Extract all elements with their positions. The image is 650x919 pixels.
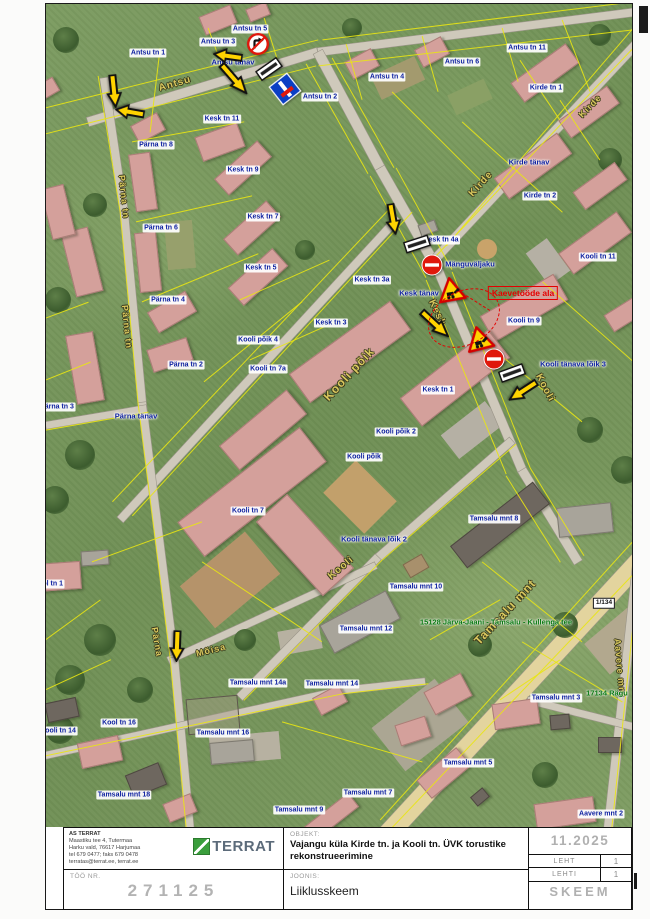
- address-label: Kirde tn 1: [528, 84, 563, 93]
- address-label: Tamsalu mnt 8: [468, 515, 520, 524]
- terrat-logo-text: TERRAT: [212, 838, 275, 855]
- tree: [532, 762, 558, 788]
- address-label: Tamsalu mnt 12: [338, 625, 393, 634]
- address-label: Kooli tänava lõik 2: [341, 535, 407, 544]
- date: 11.2025: [529, 833, 631, 848]
- tree: [611, 456, 632, 484]
- address-label: Mänguväljaku: [445, 260, 495, 269]
- divider: [284, 869, 528, 870]
- address-label: Kooli põik 2: [375, 428, 418, 437]
- address-label: Aavere mnt 2: [578, 810, 625, 819]
- address-label: Antsu tn 11: [507, 44, 548, 53]
- address-label: Pärna tn 2: [168, 361, 205, 370]
- tree: [55, 665, 85, 695]
- address-label: Kesk tn 1: [421, 386, 455, 395]
- address-label: Kesk tänav: [399, 289, 439, 298]
- tree: [65, 440, 95, 470]
- address-label: Antsu tn 1: [129, 49, 166, 58]
- road-number-label: 17134 Rägu: [586, 689, 628, 698]
- drawing-title: Liiklusskeem: [290, 884, 359, 898]
- tree: [234, 629, 256, 651]
- sheets-total-row: LEHTI 1: [529, 867, 631, 881]
- address-label: Kooli tn 11: [579, 253, 617, 262]
- address-label: Kooli tn 7: [231, 507, 266, 516]
- fold-mark-top: [639, 6, 648, 33]
- address-label: Pärna tänav: [115, 412, 158, 421]
- address-label: Tamsalu mnt 16: [195, 729, 250, 738]
- terrain-patch: [477, 239, 497, 259]
- address-label: Kesk tn 11: [203, 115, 241, 124]
- no-entry-sign: [484, 349, 505, 370]
- sheets-total-label: LEHTI: [529, 868, 600, 881]
- address-label: Kesk tn 9: [226, 166, 260, 175]
- tree: [84, 624, 116, 656]
- address-label: Tamsalu mnt 3: [530, 694, 582, 703]
- km-marker-label: 1/134: [593, 598, 615, 609]
- address-label: Kesk tn 5: [244, 264, 278, 273]
- address-label: Antsu tn 2: [301, 93, 338, 102]
- address-label: Tamsalu mnt 9: [273, 806, 325, 815]
- company-address: AS TERRAT Maastiku tee 4, Tutermaa Harku…: [69, 831, 140, 866]
- address-label: Kesk tn 7: [246, 213, 280, 222]
- stage: SKEEM: [529, 884, 631, 899]
- tree: [53, 27, 79, 53]
- tree: [83, 193, 107, 217]
- road-number-label: 15128 Järva-Jaani - Tamsalu - Kullenga t…: [420, 618, 572, 627]
- no-turning-sign: [247, 33, 269, 55]
- terrat-logo-icon: [193, 838, 210, 855]
- title-block-object-cell: OBJEKT: Vajangu küla Kirde tn. ja Kooli …: [284, 828, 529, 909]
- aerial-map: Antsu tn 5Antsu tn 3Antsu tn 1Antsu tn 2…: [46, 4, 632, 827]
- divider: [529, 881, 631, 882]
- drawing-sheet: { "title_block": { "company": { "lines":…: [0, 0, 650, 919]
- sheets-total-value: 1: [600, 868, 631, 881]
- address-label: Kooli tn 9: [507, 317, 542, 326]
- address-label: Pärna tn 3: [46, 403, 75, 412]
- building: [556, 502, 614, 538]
- address-label: Pärna tn 4: [150, 296, 187, 305]
- building: [549, 714, 570, 731]
- address-label: Kooli põik 4: [237, 336, 280, 345]
- address-label: Antsu tn 3: [199, 38, 236, 47]
- address-label: Tamsalu mnt 10: [388, 583, 443, 592]
- address-label: Pärna tn 8: [138, 141, 175, 150]
- no-entry-sign: [422, 255, 443, 276]
- detour-arrow: [168, 630, 185, 663]
- tree: [295, 240, 315, 260]
- address-label: Tamsalu mnt 18: [96, 791, 151, 800]
- address-label: Tamsalu mnt 14a: [228, 679, 287, 688]
- divider: [64, 869, 283, 870]
- address-label: Kesk tn 3a: [353, 276, 391, 285]
- address-label: Antsu tn 6: [443, 58, 480, 67]
- address-label: Kooli tn 14: [46, 727, 77, 736]
- drawing-label: JOONIS:: [290, 873, 320, 880]
- work-number: 271125: [64, 881, 283, 901]
- building: [81, 550, 110, 567]
- sheet-row: LEHT 1: [529, 854, 631, 868]
- terrat-logo: TERRAT: [193, 838, 275, 855]
- address-label: Pärna tn 6: [143, 224, 180, 233]
- object-title: Vajangu küla Kirde tn. ja Kooli tn. ÜVK …: [290, 839, 522, 862]
- address-label: Kirde tänav: [509, 158, 550, 167]
- work-number-label: TÖÖ NR.: [70, 873, 101, 880]
- address-label: Kool tn 1: [46, 580, 64, 589]
- address-label: Tamsalu mnt 14: [304, 680, 359, 689]
- title-block: AS TERRAT Maastiku tee 4, Tutermaa Harku…: [63, 827, 632, 910]
- address-label: Kooli tänava lõik 3: [540, 360, 606, 369]
- address-label: Kooli põik: [346, 453, 383, 462]
- fold-mark-bottom: [634, 873, 637, 889]
- address-label: Tamsalu mnt 5: [442, 759, 494, 768]
- company-name: AS TERRAT: [69, 831, 140, 838]
- address-label: Kool tn 16: [101, 719, 138, 728]
- address-label: Antsu tn 4: [368, 73, 405, 82]
- address-label: Kooli tn 7a: [249, 365, 288, 374]
- object-label: OBJEKT:: [290, 831, 320, 838]
- tree: [127, 677, 153, 703]
- work-area-label: Kaevetööde ala: [488, 286, 558, 300]
- building: [209, 739, 255, 765]
- address-label: Kirde tn 2: [522, 192, 557, 201]
- title-block-meta-cell: 11.2025 LEHT 1 LEHTI 1 SKEEM: [529, 828, 631, 909]
- address-label: Kesk tn 3: [314, 319, 348, 328]
- title-block-company-cell: AS TERRAT Maastiku tee 4, Tutermaa Harku…: [64, 828, 284, 909]
- address-label: Tamsalu mnt 7: [342, 789, 394, 798]
